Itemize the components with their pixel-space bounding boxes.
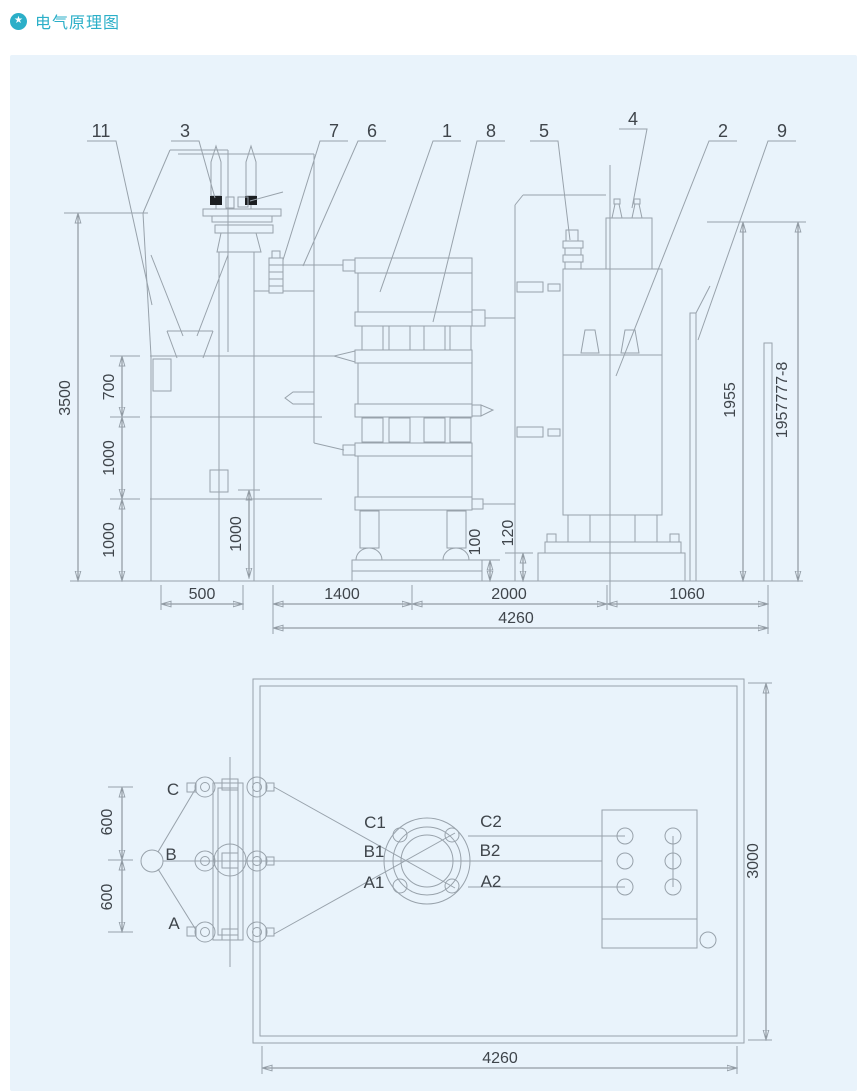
dim-serial: 1957777-8 [774, 362, 791, 439]
callout-3: 3 [180, 121, 190, 141]
dim-100: 100 [467, 529, 484, 556]
dim-2000: 2000 [491, 586, 527, 603]
label-A2: A2 [481, 872, 502, 891]
callout-8: 8 [486, 121, 496, 141]
dim-120: 120 [500, 520, 517, 547]
elevation-right-dims: 1955 1957777-8 [707, 222, 806, 581]
technical-drawing: 11 3 7 6 1 8 5 4 2 9 [0, 0, 867, 1091]
leader-11 [87, 141, 152, 305]
shelf-lines [150, 356, 334, 499]
bushing-frame [190, 757, 277, 967]
hatch-block [153, 359, 171, 391]
leader-5 [530, 141, 570, 240]
label-C2: C2 [480, 812, 502, 831]
callout-9: 9 [777, 121, 787, 141]
dim-1000-b: 1000 [101, 522, 118, 558]
label-B: B [165, 845, 176, 864]
callout-6: 6 [367, 121, 377, 141]
dim-600-bottom: 600 [99, 884, 116, 911]
dim-600-top: 600 [99, 809, 116, 836]
callout-11: 11 [92, 121, 111, 141]
label-B2: B2 [480, 841, 501, 860]
leader-8 [433, 141, 505, 322]
label-B1: B1 [364, 842, 385, 861]
dim-700: 700 [101, 374, 118, 401]
dim-1060: 1060 [669, 586, 705, 603]
leader-2 [616, 141, 737, 376]
label-C1: C1 [364, 813, 386, 832]
callout-5: 5 [539, 121, 549, 141]
coil-row-1 [362, 326, 471, 350]
electrode-assembly [203, 146, 283, 581]
support-springs [356, 511, 469, 560]
label-C: C [167, 780, 179, 799]
leader-7 [283, 141, 348, 260]
base-dims: 100 120 [455, 520, 533, 581]
page: ★ 电气原理图 [0, 0, 867, 1091]
partition-wall [515, 195, 606, 581]
dim-1400: 1400 [324, 586, 360, 603]
leader-4 [619, 129, 647, 208]
dim-1000-a: 1000 [101, 440, 118, 476]
phase-lines [274, 787, 625, 934]
busbar-connectors [283, 265, 343, 404]
elevation-bottom-dims: 500 1400 2000 1060 4260 [161, 585, 768, 634]
leader-1 [380, 141, 461, 292]
bushing-5 [563, 230, 583, 269]
callout-2: 2 [718, 121, 728, 141]
dim-1955: 1955 [722, 382, 739, 418]
top-box-4 [606, 199, 652, 269]
support-insulator [269, 251, 283, 293]
transformer-stack [334, 258, 515, 581]
tank-base [538, 553, 685, 581]
leader-9 [698, 141, 796, 340]
leader-6 [303, 141, 386, 266]
tank-body [563, 269, 662, 515]
terminal-labels: C B A C1 B1 A1 C2 B2 A2 [165, 780, 502, 933]
callout-7: 7 [329, 121, 339, 141]
label-A1: A1 [364, 873, 385, 892]
cabinet-knob [700, 932, 716, 948]
callout-1: 1 [442, 121, 452, 141]
plan-dims: 600 600 3000 4260 [99, 683, 772, 1074]
dim-3500: 3500 [57, 380, 74, 416]
callout-4: 4 [628, 109, 638, 129]
dim-3000: 3000 [745, 843, 762, 879]
dim-1000-inner: 1000 [228, 516, 245, 552]
plan-view: C B A C1 B1 A1 C2 B2 A2 600 600 [99, 679, 772, 1074]
dim-500: 500 [189, 586, 216, 603]
dim-4260-top: 4260 [498, 610, 534, 627]
control-cabinet [602, 810, 716, 948]
label-A: A [168, 914, 180, 933]
dim-4260-bottom: 4260 [482, 1050, 518, 1067]
elevation-view: 11 3 7 6 1 8 5 4 2 9 [57, 109, 806, 634]
coil-row-2 [362, 418, 471, 442]
elevation-left-dims: 3500 700 1000 1000 1000 [57, 213, 260, 581]
side-panels [690, 286, 772, 581]
tank-unit [538, 165, 685, 604]
